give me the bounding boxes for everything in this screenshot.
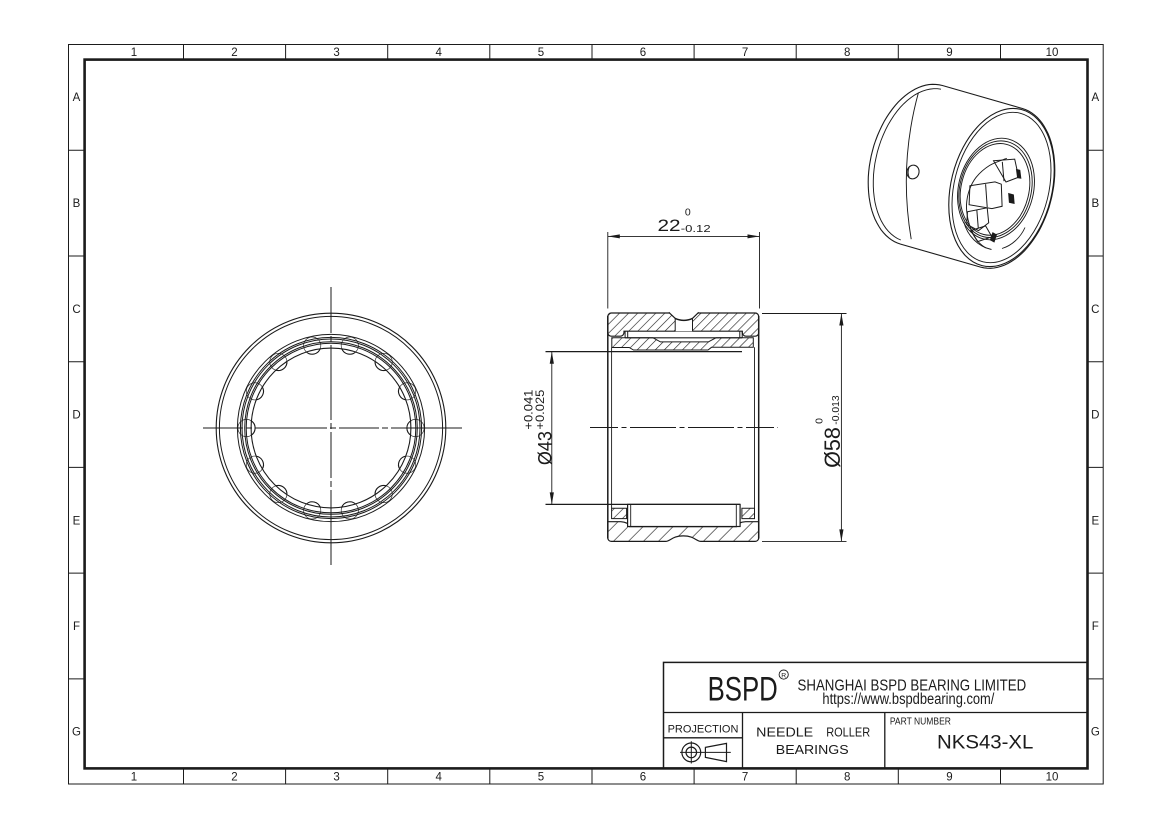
svg-text:2: 2: [231, 47, 237, 59]
svg-text:F: F: [73, 621, 80, 633]
svg-text:9: 9: [946, 771, 952, 783]
svg-text:9: 9: [946, 47, 952, 59]
svg-text:10: 10: [1046, 47, 1059, 59]
svg-text:G: G: [72, 727, 81, 739]
svg-text:7: 7: [742, 771, 748, 783]
svg-text:5: 5: [538, 771, 544, 783]
svg-text:B: B: [73, 198, 81, 210]
svg-text:PART NUMBER: PART NUMBER: [890, 717, 951, 728]
svg-text:BSPD: BSPD: [708, 671, 778, 709]
svg-text:E: E: [1091, 515, 1099, 527]
svg-text:6: 6: [640, 47, 646, 59]
svg-text:6: 6: [640, 771, 646, 783]
svg-text:1: 1: [131, 771, 137, 783]
svg-text:D: D: [72, 410, 80, 422]
svg-text:8: 8: [844, 771, 850, 783]
svg-text:BEARINGS: BEARINGS: [776, 743, 849, 757]
svg-text:NKS43-XL: NKS43-XL: [937, 732, 1034, 753]
svg-text:NEEDLEROLLER: NEEDLEROLLER: [756, 726, 870, 740]
svg-text:B: B: [1091, 198, 1099, 210]
svg-text:3: 3: [333, 47, 339, 59]
svg-text:D: D: [1091, 410, 1099, 422]
svg-text:C: C: [1091, 304, 1099, 316]
svg-text:A: A: [1091, 92, 1099, 104]
svg-text:PROJECTION: PROJECTION: [668, 723, 739, 735]
svg-text:C: C: [72, 304, 80, 316]
svg-text:10: 10: [1046, 771, 1059, 783]
svg-text:R: R: [781, 672, 786, 679]
svg-text:A: A: [73, 92, 81, 104]
svg-text:220-0.12: 220-0.12: [658, 207, 711, 235]
svg-text:2: 2: [231, 771, 237, 783]
svg-text:3: 3: [333, 771, 339, 783]
svg-text:8: 8: [844, 47, 850, 59]
svg-text:https://www.bspdbearing.com/: https://www.bspdbearing.com/: [822, 691, 995, 708]
svg-text:5: 5: [538, 47, 544, 59]
svg-text:E: E: [73, 515, 81, 527]
svg-text:1: 1: [131, 47, 137, 59]
svg-text:F: F: [1092, 621, 1099, 633]
svg-text:Ø580-0.013: Ø580-0.013: [813, 395, 845, 468]
svg-text:4: 4: [435, 47, 442, 59]
svg-text:4: 4: [435, 771, 442, 783]
svg-text:7: 7: [742, 47, 748, 59]
svg-text:G: G: [1091, 727, 1100, 739]
